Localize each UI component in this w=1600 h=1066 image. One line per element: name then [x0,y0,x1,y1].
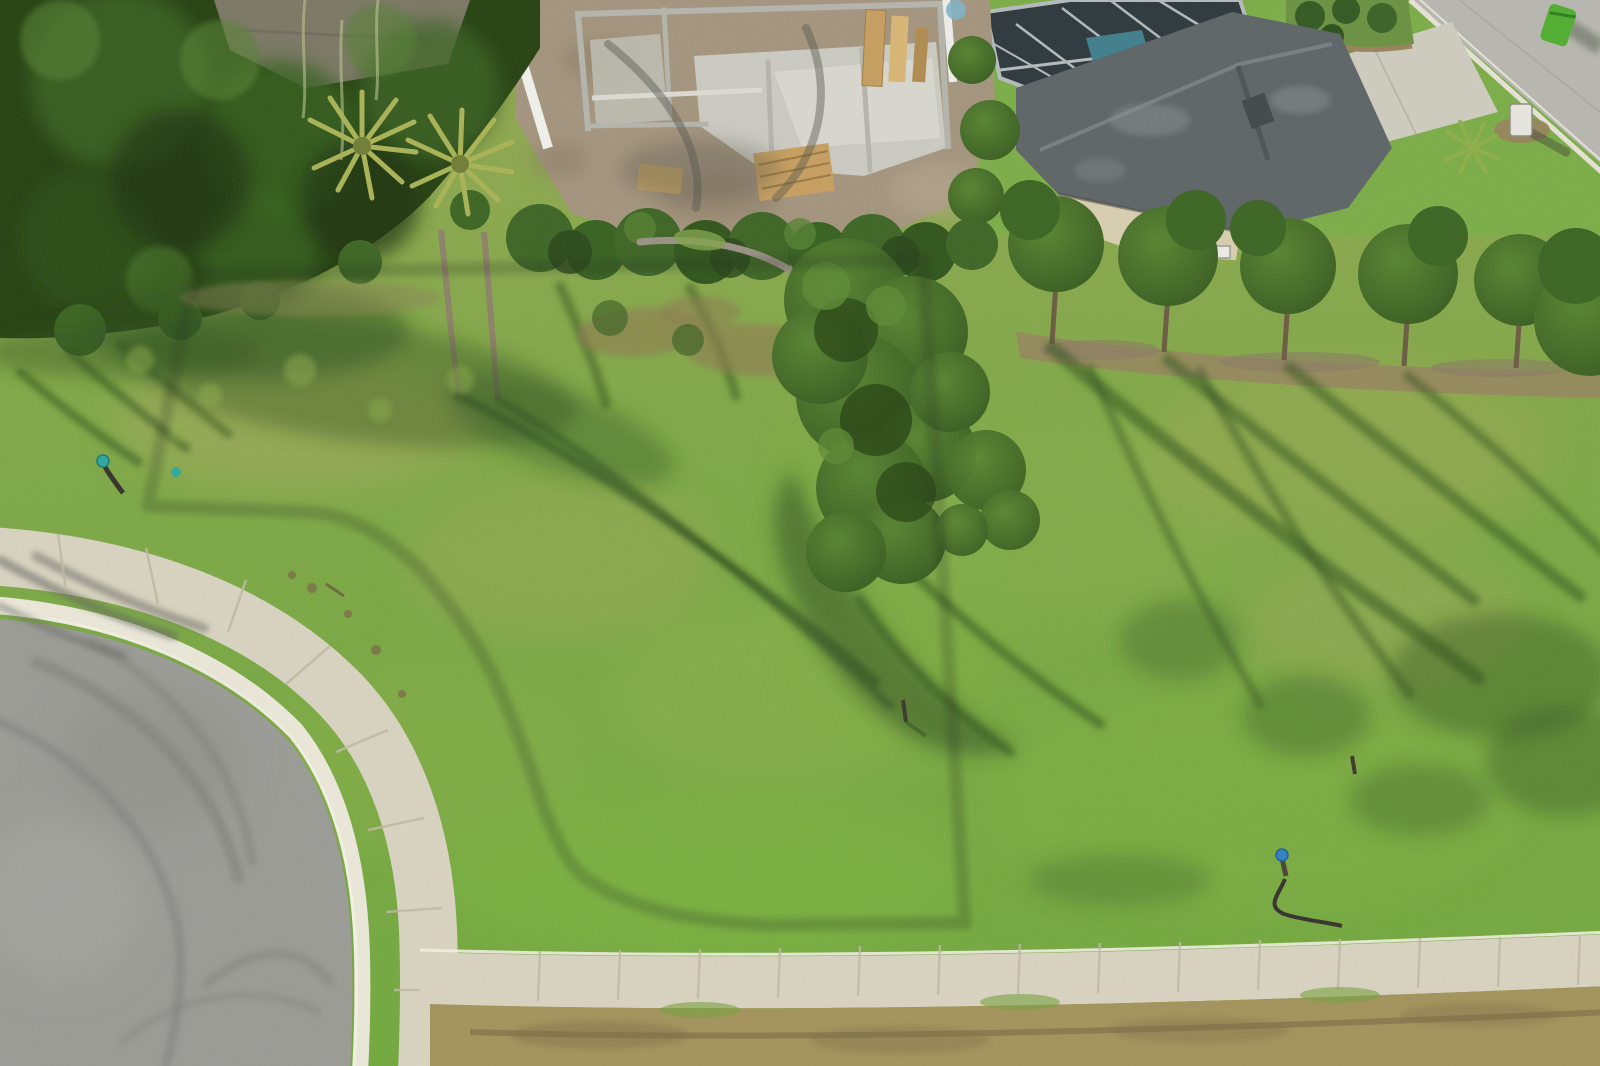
photo-grain [0,0,1600,1066]
scene [0,0,1600,1066]
aerial-photo [0,0,1600,1066]
